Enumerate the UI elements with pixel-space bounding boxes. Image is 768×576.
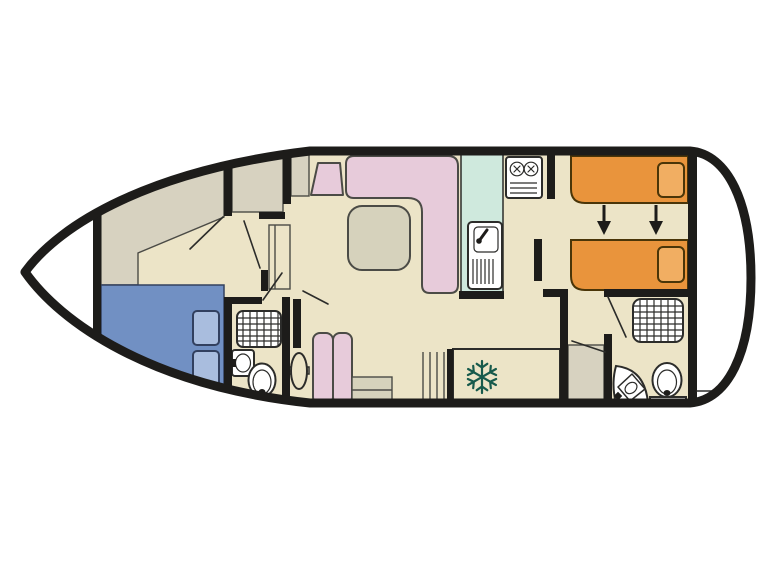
aft-entry-landing — [568, 345, 604, 403]
wall — [534, 239, 542, 281]
pillow — [658, 247, 684, 282]
helm-wheel — [291, 353, 307, 389]
saloon-bench-seat — [313, 333, 333, 404]
wall — [224, 148, 232, 216]
wall — [604, 289, 697, 297]
wall — [547, 148, 555, 199]
stern-bulkhead — [688, 148, 697, 406]
wall — [259, 212, 285, 219]
deck-plan-canvas — [0, 0, 768, 576]
wall — [604, 334, 612, 405]
wall — [224, 297, 262, 304]
pillow — [193, 311, 219, 345]
arrow-shaft — [603, 205, 606, 222]
boat-floor-plan — [0, 0, 768, 576]
wall — [261, 270, 268, 291]
wall — [447, 349, 453, 405]
saloon-table — [348, 206, 410, 270]
pillow — [658, 163, 684, 197]
wardrobe — [269, 225, 290, 289]
toilet-drain — [664, 390, 671, 396]
bow-deck-white — [15, 140, 93, 430]
wall — [282, 297, 290, 405]
wall — [560, 289, 568, 405]
wall — [459, 291, 504, 299]
stove-hob-icon — [506, 157, 542, 198]
galley-sink-icon — [468, 222, 502, 289]
wall — [293, 299, 301, 348]
arrow-shaft — [655, 205, 658, 222]
saloon-bench-seat — [333, 333, 352, 404]
